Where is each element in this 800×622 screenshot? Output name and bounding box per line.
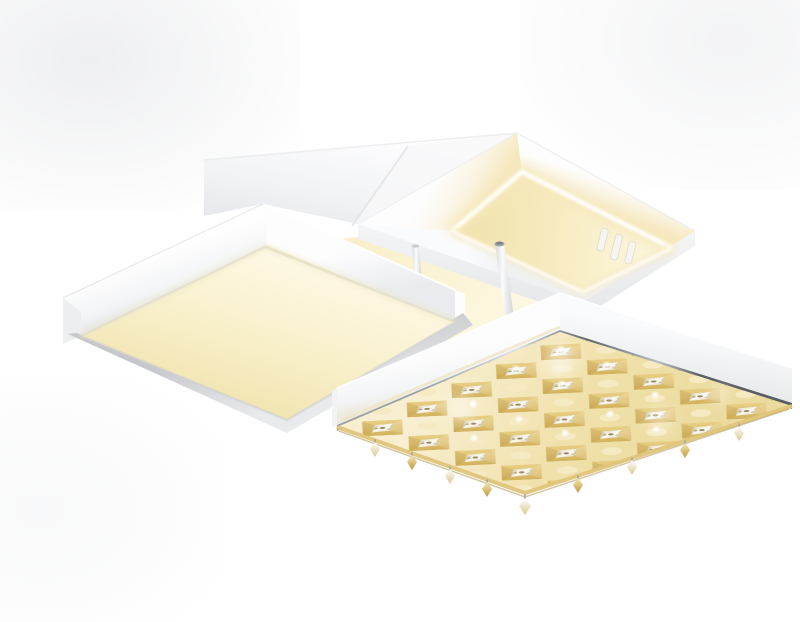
vignette-bottom-left: [0, 380, 220, 622]
crystal-frame-endcap-left: [332, 388, 337, 428]
ceiling-light-photo: [0, 0, 800, 622]
product-photo-ceiling-light: [0, 0, 800, 622]
